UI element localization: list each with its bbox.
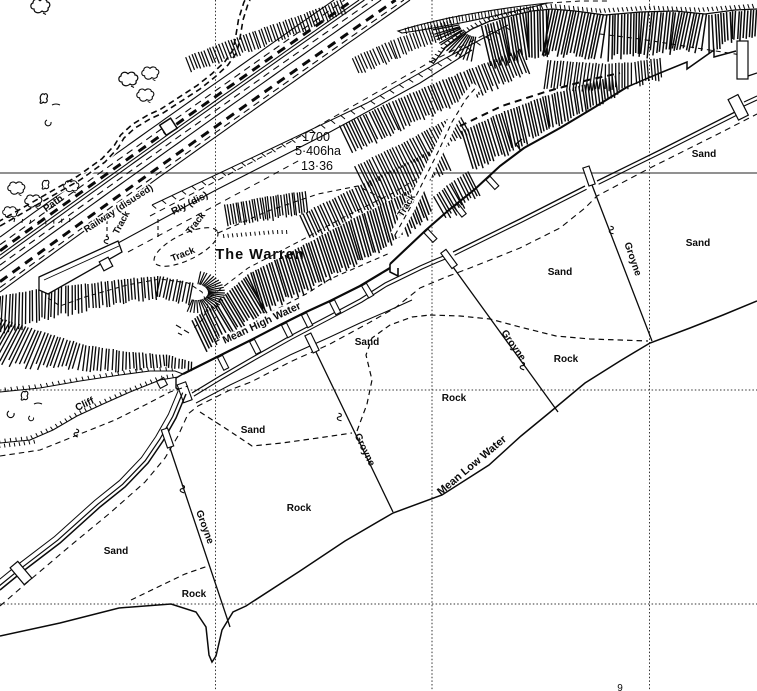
svg-text:Sand: Sand [548,267,572,278]
svg-text:5·406ha: 5·406ha [295,144,341,158]
svg-text:Sand: Sand [241,425,265,436]
svg-text:Rock: Rock [182,589,207,600]
svg-text:9: 9 [617,683,623,691]
svg-text:Rock: Rock [554,354,579,365]
svg-text:1700: 1700 [302,130,330,144]
svg-text:Rock: Rock [287,503,312,514]
svg-text:The Warren: The Warren [215,247,304,263]
svg-text:Sand: Sand [686,238,710,249]
svg-text:13·36: 13·36 [301,159,333,173]
svg-text:Sand: Sand [355,337,379,348]
svg-text:Rock: Rock [442,393,467,404]
svg-text:Sand: Sand [104,546,128,557]
svg-text:Sand: Sand [692,149,716,160]
